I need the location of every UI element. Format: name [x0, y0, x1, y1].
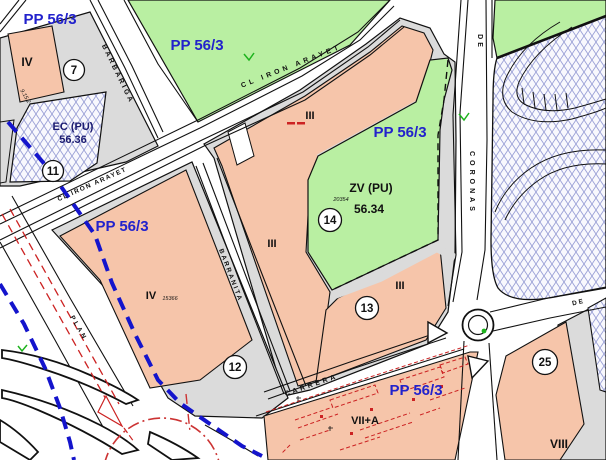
zone-ec-name: EC (PU)	[53, 121, 94, 133]
block-label-iii-se: III	[395, 280, 404, 292]
svg-text:12: 12	[229, 362, 242, 374]
zone-zv-area: 20354	[332, 197, 348, 203]
street-de-north: DE	[476, 34, 483, 50]
svg-text:7: 7	[71, 65, 77, 77]
roundabout-green-dot	[482, 329, 487, 334]
svg-text:11: 11	[47, 166, 60, 178]
zone-zv-code: 56.34	[354, 202, 384, 216]
zone-ec-code: 56.36	[59, 134, 87, 146]
zone-zv-name: ZV (PU)	[349, 181, 392, 195]
plan-label-west: PP 56/3	[95, 218, 148, 235]
marker-11[interactable]: 11	[43, 161, 64, 182]
marker-12[interactable]: 12	[224, 356, 247, 379]
hatch-area-east	[491, 16, 606, 300]
plan-label-topleft: PP 56/3	[23, 11, 76, 28]
block-label-viia: VII+A	[351, 415, 379, 427]
block-label-viii: VIII	[550, 437, 568, 451]
street-coronas: CORONAS	[468, 151, 475, 215]
block-label-iii-top: III	[305, 110, 314, 122]
zoning-map: PP 56/3 PP 56/3 PP 56/3 PP 56/3 PP 56/3 …	[0, 0, 606, 460]
block-label-iv-main: IV	[146, 290, 157, 302]
svg-text:14: 14	[324, 215, 337, 227]
plan-label-center: PP 56/3	[373, 124, 426, 141]
plan-label-south: PP 56/3	[389, 382, 442, 399]
marker-7[interactable]: 7	[64, 60, 85, 81]
marker-13[interactable]: 13	[356, 297, 379, 320]
svg-text:25: 25	[539, 357, 552, 369]
plan-label-topcenter: PP 56/3	[170, 37, 223, 54]
map-canvas[interactable]: PP 56/3 PP 56/3 PP 56/3 PP 56/3 PP 56/3 …	[0, 0, 606, 460]
marker-14[interactable]: 14	[319, 209, 342, 232]
block-label-iii-mid: III	[267, 238, 276, 250]
marker-25[interactable]: 25	[533, 350, 558, 375]
svg-text:13: 13	[361, 303, 374, 315]
block-label-iv-area: 15366	[162, 296, 178, 302]
block-label-iv-top: IV	[21, 55, 32, 69]
